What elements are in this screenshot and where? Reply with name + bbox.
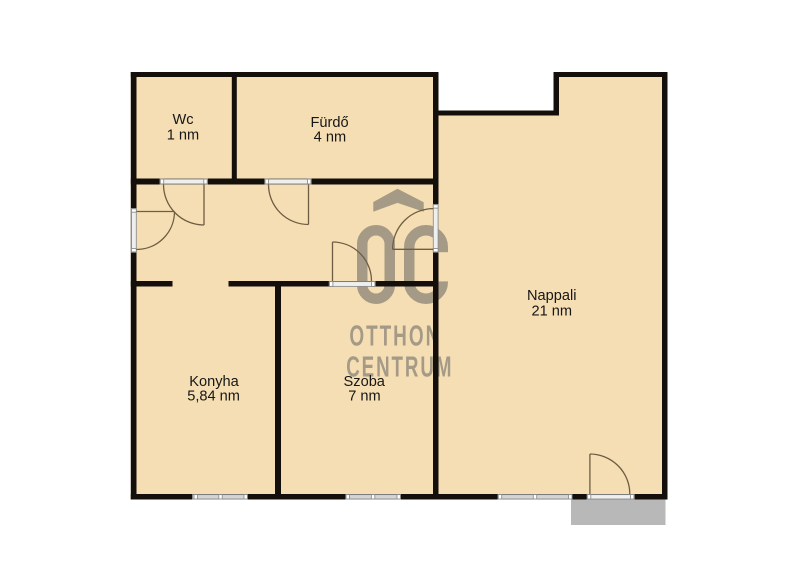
svg-text:Nappali: Nappali [527, 288, 577, 304]
svg-text:1 nm: 1 nm [167, 127, 199, 143]
svg-text:7 nm: 7 nm [348, 388, 380, 404]
svg-text:21 nm: 21 nm [531, 304, 572, 320]
svg-text:4 nm: 4 nm [314, 130, 346, 146]
svg-text:OTTHON: OTTHON [349, 320, 441, 352]
svg-text:Wc: Wc [172, 112, 193, 128]
svg-text:5,84 nm: 5,84 nm [187, 388, 240, 404]
